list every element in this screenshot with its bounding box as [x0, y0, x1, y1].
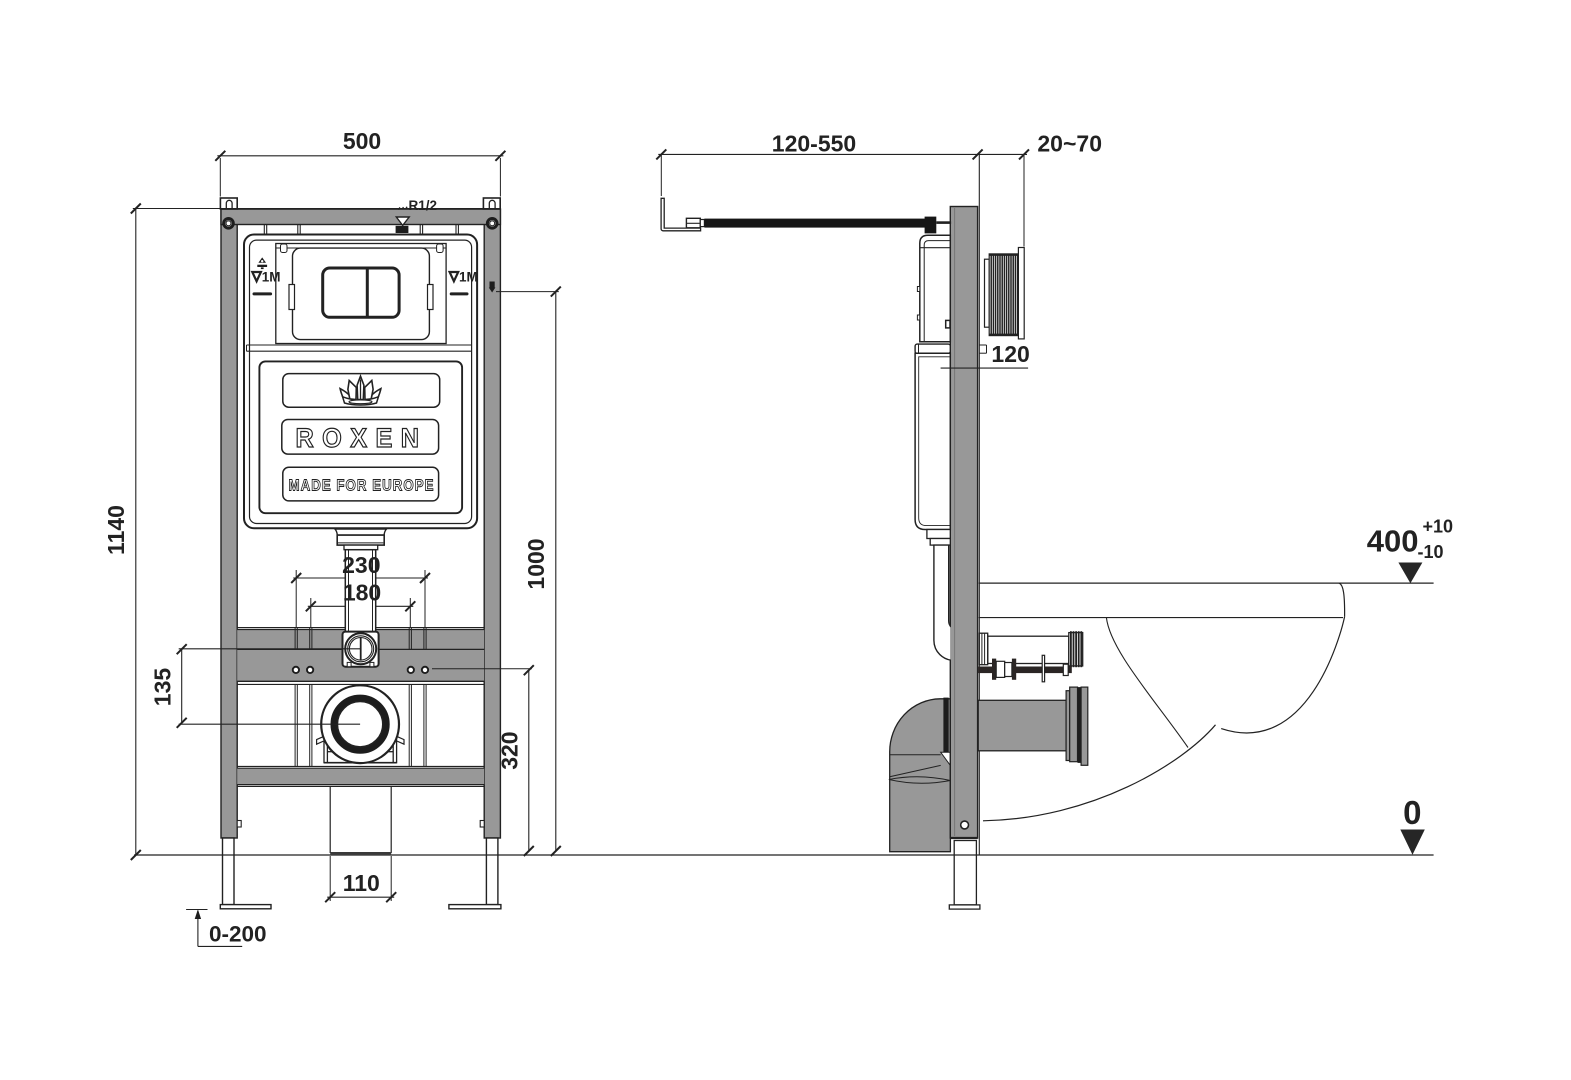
- svg-text:120: 120: [991, 341, 1029, 367]
- svg-text:MADE FOR EUROPE: MADE FOR EUROPE: [289, 478, 435, 495]
- svg-text:135: 135: [150, 668, 176, 707]
- svg-text:320: 320: [497, 731, 523, 769]
- svg-text:0: 0: [1403, 794, 1421, 831]
- svg-text:1140: 1140: [103, 505, 129, 555]
- svg-text:ROXEN: ROXEN: [296, 423, 428, 453]
- svg-text:1M: 1M: [262, 270, 281, 285]
- svg-text:+10: +10: [1423, 517, 1454, 537]
- svg-text:500: 500: [343, 128, 381, 154]
- svg-text:R1/2: R1/2: [409, 198, 438, 213]
- svg-text:-10: -10: [1418, 542, 1444, 562]
- svg-text:400: 400: [1367, 524, 1419, 559]
- svg-text:1000: 1000: [523, 538, 549, 589]
- svg-text:120-550: 120-550: [772, 130, 856, 156]
- svg-text:180: 180: [343, 580, 381, 606]
- svg-text:1M: 1M: [459, 270, 478, 285]
- svg-text:110: 110: [343, 870, 380, 896]
- svg-text:230: 230: [342, 552, 380, 578]
- svg-text:20~70: 20~70: [1037, 130, 1102, 156]
- svg-text:0-200: 0-200: [209, 922, 267, 947]
